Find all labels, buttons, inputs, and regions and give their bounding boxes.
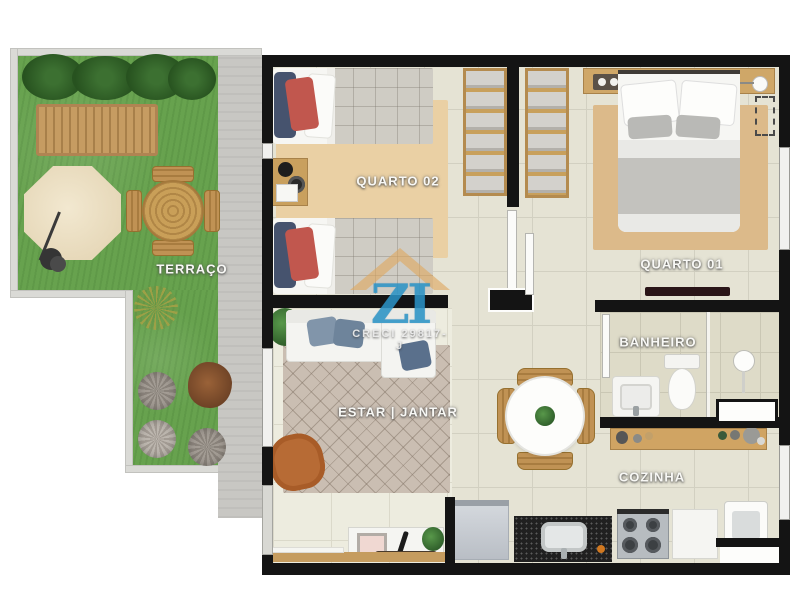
sofa-pillow-navy: [398, 339, 433, 371]
shelf-decor-knob: [598, 78, 606, 86]
condiment-jar: [633, 434, 642, 443]
shower-glass-partition: [706, 312, 710, 417]
bedroom1-tv-rack: [645, 287, 730, 296]
terrace-parapet-strip-bottom: [125, 465, 225, 473]
double-bed-cushion-right: [675, 114, 720, 139]
terrace-label: TERRAÇO: [156, 262, 227, 277]
console-plant: [422, 527, 444, 551]
living-dining-label: ESTAR | JANTAR: [338, 405, 458, 420]
toilet-tank: [664, 354, 700, 369]
ornamental-grass-plant: [134, 286, 178, 330]
pouf-ottoman: [138, 420, 176, 458]
wall-outer-left: [262, 555, 273, 575]
pouf-ottoman: [188, 428, 226, 466]
wall-bathroom-north: [595, 300, 780, 312]
pouf-ottoman: [138, 372, 176, 410]
stove-grill-strip: [617, 509, 669, 514]
floorplan-canvas: TERRAÇO QUARTO 02 QUARTO 01: [0, 0, 800, 600]
bedroom1-door-leaf: [525, 233, 534, 295]
bathroom-door-leaf: [602, 314, 610, 378]
single-bed-1-blanket: [331, 68, 433, 144]
terrace-round-table: [142, 180, 204, 242]
stove-burner: [622, 537, 638, 553]
bedroom1-window: [779, 147, 790, 250]
bedroom2-label: QUARTO 02: [356, 174, 439, 189]
orange-knob: [597, 545, 605, 553]
shower-stem: [742, 371, 745, 393]
double-bed-cushion-left: [627, 114, 672, 139]
stump-side-table: [188, 362, 232, 408]
condiment-jar: [616, 431, 628, 444]
stove-burner: [623, 518, 637, 532]
ac-unit-dashed-outline: [755, 96, 775, 136]
shelf-decor-knob: [610, 78, 618, 86]
wall-laundry-jog: [716, 538, 784, 547]
herb-pot: [718, 431, 727, 440]
dining-chair-south: [517, 452, 573, 470]
laundry-window: [779, 445, 790, 520]
wall-outer-bottom: [262, 563, 790, 575]
record-disc: [278, 162, 293, 177]
shower-head: [733, 350, 755, 372]
double-bed-runner-blanket: [618, 158, 740, 214]
wall-outer-left: [262, 447, 273, 485]
wall-outer-right: [779, 55, 790, 147]
laundry-tank-basin: [732, 511, 760, 539]
sun-lounger: [36, 104, 158, 156]
kitchen-label: COZINHA: [619, 470, 685, 485]
terrace-chair-south: [152, 240, 194, 256]
sofa-pillow-blue-2: [332, 318, 365, 348]
sink-faucet: [633, 406, 639, 416]
toilet-bowl: [668, 368, 696, 410]
bathroom-label: BANHEIRO: [619, 335, 696, 350]
white-wall-shelf: [272, 547, 344, 553]
cup: [757, 437, 765, 445]
stove-burner: [646, 518, 660, 532]
bathroom-niche: [716, 399, 778, 424]
kitchen-faucet: [561, 548, 567, 559]
terrace-glass-door: [262, 485, 273, 555]
living-room-window: [262, 348, 273, 447]
refrigerator-top: [453, 500, 509, 506]
condiment-jar: [645, 432, 653, 440]
table-lamp: [752, 76, 768, 92]
wall-living-kitchen: [445, 497, 455, 567]
bedroom2-wardrobe: [463, 68, 507, 196]
wall-outer-top: [262, 55, 790, 67]
terrace-parapet-bottom-left: [10, 290, 133, 298]
single-bed-2-blanket: [331, 218, 433, 294]
wall-outer-right: [779, 520, 790, 575]
terrace-parapet-strip-left: [125, 290, 133, 473]
condiment-jar: [730, 430, 740, 440]
bedroom1-label: QUARTO 01: [640, 257, 723, 272]
wall-between-bedrooms: [507, 67, 519, 207]
parasol-umbrella: [24, 166, 121, 260]
terrace-chair-west: [126, 190, 142, 232]
lamp-arm: [740, 82, 754, 84]
refrigerator: [453, 500, 509, 560]
stove-burner: [645, 537, 661, 553]
wall-outer-right: [779, 250, 790, 445]
notepad: [276, 184, 298, 202]
terrace-parapet-left: [10, 48, 18, 298]
kitchen-cabinet: [672, 509, 718, 559]
terrace-chair-east: [204, 190, 220, 232]
hedge-plant: [168, 58, 216, 100]
table-centerpiece-plant: [535, 406, 555, 426]
wall-outer-left: [262, 55, 273, 143]
bedroom2-window: [262, 143, 273, 159]
bedroom2-door-leaf: [507, 210, 517, 292]
low-wood-shelf: [272, 552, 448, 562]
wall-outer-left: [262, 159, 273, 348]
wall-bedroom2-south: [262, 295, 448, 308]
bedroom1-wardrobe: [525, 68, 569, 198]
umbrella-base-top: [50, 256, 66, 272]
